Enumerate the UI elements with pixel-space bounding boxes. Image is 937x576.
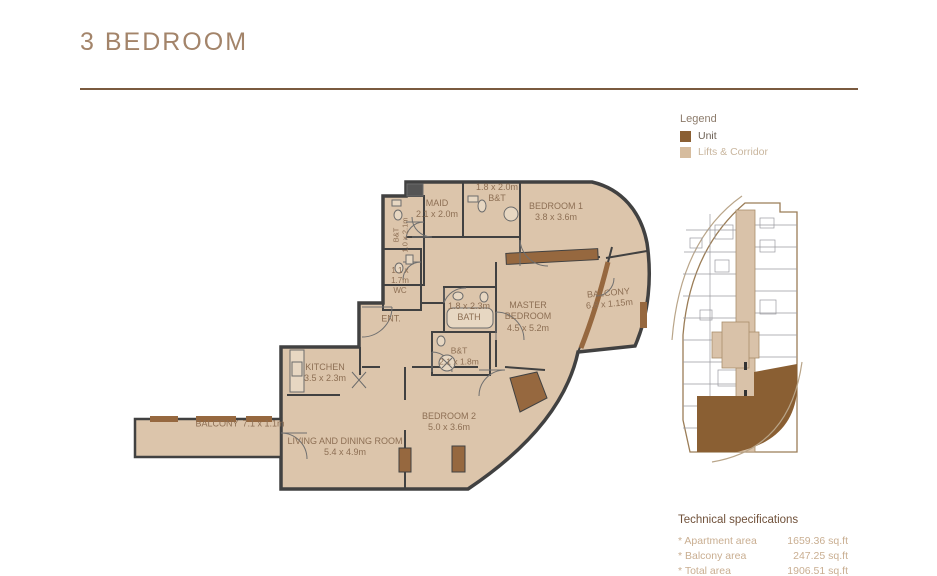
- shaft: [407, 184, 423, 196]
- room-label-entrance: ENT.: [381, 313, 401, 324]
- room-name: ENT.: [381, 313, 401, 324]
- room-name: LIVING AND DINING ROOM: [286, 436, 404, 447]
- room-name: BEDROOM 2: [422, 411, 476, 422]
- spec-label: * Apartment area: [678, 534, 757, 549]
- room-dims: 3.8 x 3.6m: [535, 212, 577, 223]
- spec-label: * Total area: [678, 564, 731, 576]
- room-dims: 1.8 x 2.0m: [476, 182, 518, 193]
- room-label-bt-top: B&T 1.8 x 2.0m: [476, 182, 518, 205]
- spec-row-apartment-area: * Apartment area 1659.36 sq.ft: [678, 534, 848, 549]
- room-dims: 4.5 x 5.2m: [507, 323, 549, 334]
- balcony-right-sill: [640, 302, 647, 328]
- room-label-bedroom2: BEDROOM 2 5.0 x 3.6m: [422, 411, 476, 434]
- room-dims: 5.0 x 3.6m: [428, 422, 470, 433]
- room-name: MASTER BEDROOM: [492, 300, 564, 323]
- room-label-bt-mid: B&T 2.1 x 1.8m: [439, 345, 479, 366]
- room-label-kitchen: KITCHEN 3.5 x 2.3m: [304, 362, 346, 385]
- room-label-wc: WC 1.1 x 1.7m: [385, 266, 415, 296]
- room-name: WC: [393, 286, 406, 296]
- room-label-maid: MAID 2.1 x 2.0m: [416, 198, 458, 221]
- room-label-balcony-left: BALCONY 7.1 x 1.1m: [195, 418, 284, 429]
- balcony-left-sill: [150, 416, 178, 422]
- room-label-living-dining: LIVING AND DINING ROOM 5.4 x 4.9m: [286, 436, 404, 459]
- room-dims: 7.1 x 1.1m: [242, 418, 284, 429]
- room-label-bedroom1: BEDROOM 1 3.8 x 3.6m: [529, 201, 583, 224]
- room-name: B&T: [488, 193, 506, 204]
- room-dims: 2.1 x 1.8m: [439, 356, 479, 367]
- spec-row-total-area: * Total area 1906.51 sq.ft: [678, 564, 848, 576]
- spec-value: 1906.51 sq.ft: [787, 564, 848, 576]
- spec-value: 247.25 sq.ft: [793, 549, 848, 564]
- spec-value: 1659.36 sq.ft: [787, 534, 848, 549]
- spec-row-balcony-area: * Balcony area 247.25 sq.ft: [678, 549, 848, 564]
- room-dims: 1.1 x 1.7m: [385, 266, 415, 286]
- key-plan: [672, 196, 802, 462]
- room-name: MAID: [426, 198, 449, 209]
- room-name: BALCONY: [195, 418, 238, 429]
- room-label-bath: BATH 1.8 x 2.3m: [448, 301, 490, 324]
- technical-specifications: Technical specifications * Apartment are…: [678, 514, 848, 576]
- room-label-balcony-right: BALCONY 6.8 x 1.15m: [585, 286, 634, 313]
- room-name: KITCHEN: [305, 362, 345, 373]
- room-label-master-bedroom: MASTER BEDROOM 4.5 x 5.2m: [492, 300, 564, 334]
- room-dims: 1.0 x 2.1m: [401, 217, 410, 252]
- room-name: BATH: [457, 312, 480, 323]
- room-label-bt-left: B&T 1.0 x 2.1m: [392, 217, 411, 252]
- bedroom2-threshold: [452, 446, 465, 472]
- room-name: B&T: [392, 228, 401, 243]
- spec-label: * Balcony area: [678, 549, 746, 564]
- floor-plan-page: 3 BEDROOM Legend Unit Lifts & Corridor: [0, 0, 937, 576]
- room-dims: 1.8 x 2.3m: [448, 301, 490, 312]
- floor-plan-drawing: [0, 0, 937, 576]
- tech-specs-title: Technical specifications: [678, 514, 848, 526]
- room-dims: 3.5 x 2.3m: [304, 373, 346, 384]
- room-name: BEDROOM 1: [529, 201, 583, 212]
- room-dims: 5.4 x 4.9m: [324, 447, 366, 458]
- room-dims: 2.1 x 2.0m: [416, 209, 458, 220]
- room-name: B&T: [451, 345, 468, 356]
